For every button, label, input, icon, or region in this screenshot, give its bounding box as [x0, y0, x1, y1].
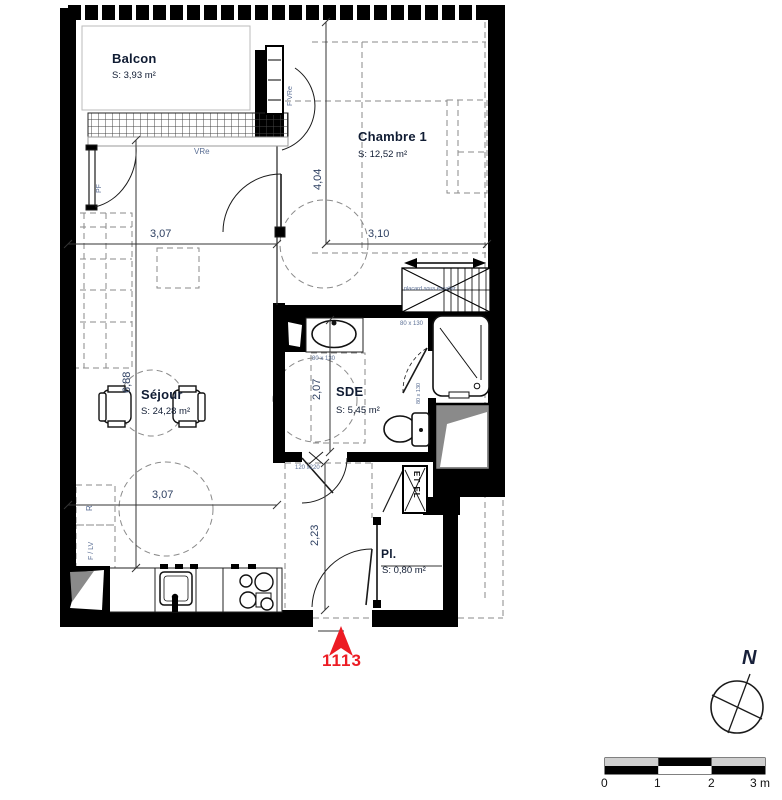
- dim-top-right: 3,10: [368, 229, 389, 240]
- dim-chambre-v: 4,04: [313, 169, 324, 190]
- unit-number: 1113: [322, 652, 362, 669]
- tag-f-vre: F VRe: [287, 86, 294, 106]
- tag-vre: VRe: [194, 148, 210, 156]
- tag-f-lv: F / LV: [88, 542, 95, 560]
- tag-80x130-b: 80 x 130: [312, 356, 335, 362]
- scale-1: 1: [654, 777, 661, 789]
- room-label-sde: SDE: [336, 385, 363, 398]
- tag-placard-sous-escalier: placard sous escalier: [404, 287, 456, 293]
- room-area-placard: S: 0,80 m²: [382, 566, 426, 576]
- room-area-chambre: S: 12,52 m²: [358, 150, 407, 160]
- north-label: N: [742, 648, 756, 668]
- kitchen: [64, 564, 282, 616]
- dim-bottom: 3,07: [152, 490, 173, 501]
- stairs: [402, 258, 490, 312]
- tag-r: R: [86, 505, 94, 511]
- scale-bar: [605, 758, 765, 774]
- compass-icon: [711, 674, 763, 733]
- dim-hall-v: 2,23: [310, 525, 321, 546]
- room-label-balcon: Balcon: [112, 52, 157, 65]
- room-area-sejour: S: 24,28 m²: [141, 407, 190, 417]
- scale-2: 2: [708, 777, 715, 789]
- room-label-chambre: Chambre 1: [358, 130, 427, 143]
- tag-80x130-a: 80 x 130: [400, 321, 423, 327]
- dim-sejour-v: 6,88: [122, 372, 133, 393]
- room-label-sejour: Séjour: [141, 388, 183, 401]
- room-label-placard: Pl.: [381, 548, 396, 560]
- floor-plan: Balcon S: 3,93 m² Chambre 1 S: 12,52 m² …: [0, 0, 782, 800]
- closet: [373, 517, 442, 608]
- room-area-sde: S: 5,45 m²: [336, 406, 380, 416]
- dim-sde-v: 2,07: [312, 379, 323, 400]
- tag-etel: ET EL: [412, 471, 420, 499]
- tag-pf: PF: [96, 184, 103, 193]
- scale-3m: 3 m: [750, 777, 770, 789]
- tag-120x220: 120 x220: [295, 465, 320, 471]
- floorplan-drawing: [0, 0, 782, 800]
- tag-80x130-c: 80 x 130: [417, 383, 423, 404]
- scale-0: 0: [601, 777, 608, 789]
- room-area-balcon: S: 3,93 m²: [112, 71, 156, 81]
- dim-top-left: 3,07: [150, 229, 171, 240]
